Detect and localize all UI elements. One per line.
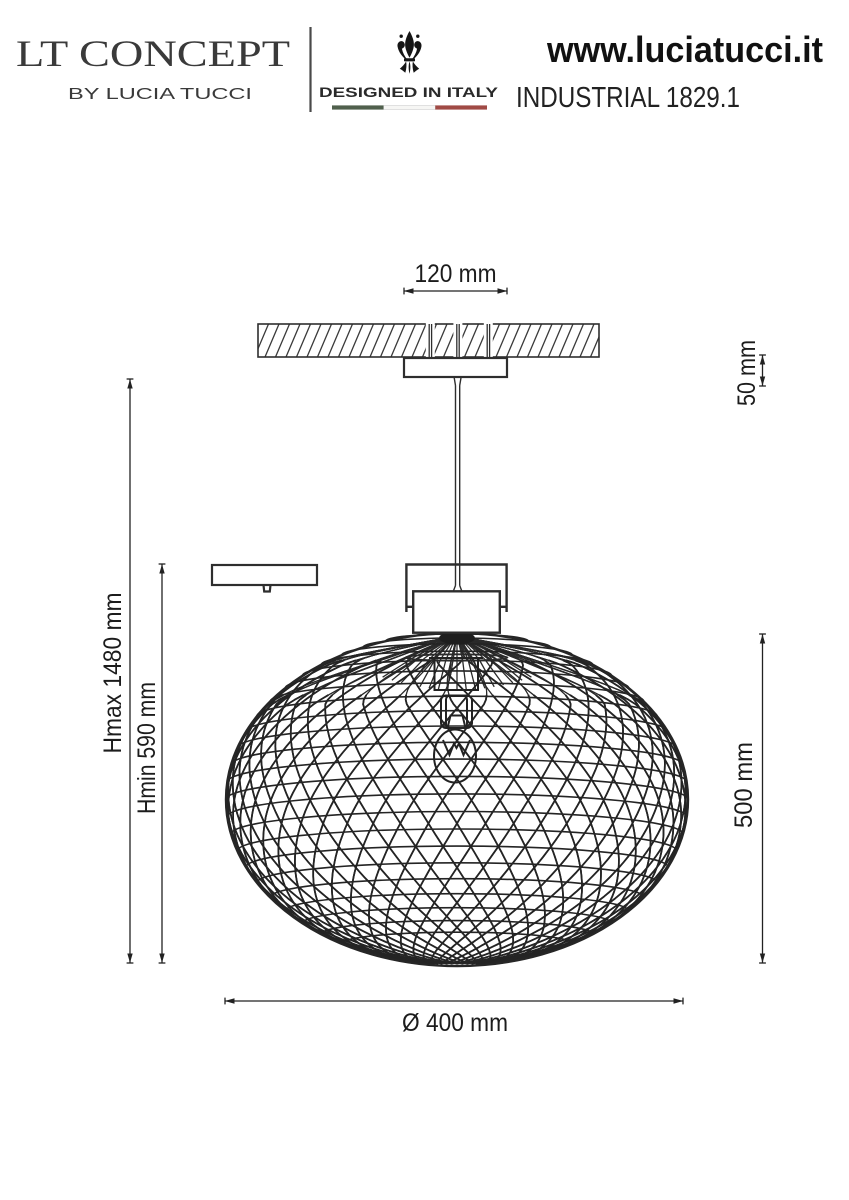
- svg-text:BY LUCIA TUCCI: BY LUCIA TUCCI: [68, 86, 252, 103]
- svg-text:500 mm: 500 mm: [730, 742, 758, 828]
- svg-text:50 mm: 50 mm: [733, 340, 761, 406]
- svg-text:INDUSTRIAL 1829.1: INDUSTRIAL 1829.1: [516, 82, 740, 114]
- svg-text:Hmin 590 mm: Hmin 590 mm: [133, 682, 161, 814]
- svg-text:DESIGNED IN ITALY: DESIGNED IN ITALY: [319, 85, 498, 100]
- svg-text:Ø 400 mm: Ø 400 mm: [402, 1009, 508, 1037]
- svg-text:www.luciatucci.it: www.luciatucci.it: [546, 29, 823, 70]
- svg-text:LT CONCEPT: LT CONCEPT: [16, 34, 290, 75]
- svg-text:120 mm: 120 mm: [415, 260, 497, 288]
- svg-text:Hmax 1480 mm: Hmax 1480 mm: [99, 593, 127, 754]
